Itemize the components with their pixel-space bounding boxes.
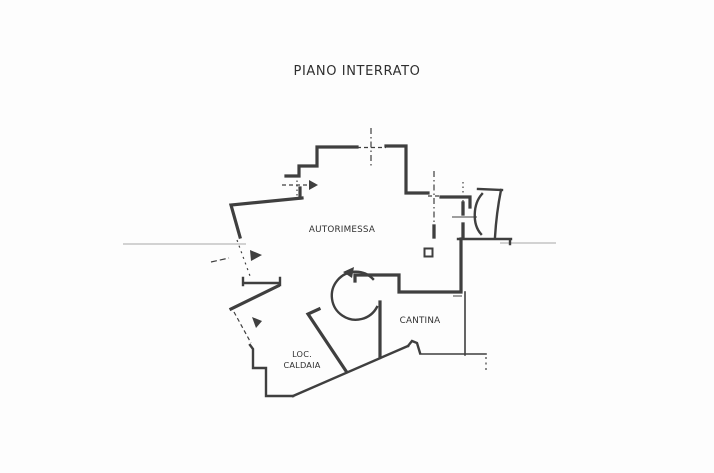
wall-bottom-bump <box>408 341 420 353</box>
left-horizontal-dash <box>211 258 229 262</box>
boiler-room-walls <box>231 278 420 396</box>
wall-top-right-block <box>386 146 428 193</box>
room-label-cellar: CANTINA <box>400 316 441 326</box>
garage-walls <box>231 146 511 356</box>
boiler-opening-dash <box>234 312 251 343</box>
reference-hairlines <box>123 243 556 244</box>
boiler-arrow-icon <box>252 317 262 328</box>
basement-floorplan-drawing: AUTORIMESSA CANTINA LOC. CALDAIA <box>0 0 714 473</box>
wall-niche-top <box>243 278 280 285</box>
wall-boiler-left-steps <box>250 345 293 396</box>
curve-inner-edge <box>475 194 482 234</box>
wall-top-left-steps <box>286 147 357 176</box>
curve-cap <box>478 189 502 190</box>
ramp-direction-arrow-icon <box>343 267 354 278</box>
right-gate-symbol <box>434 182 477 237</box>
left-ramp-dash <box>237 240 250 276</box>
room-label-boiler-line2: CALDAIA <box>283 360 320 370</box>
wall-boiler-upper-slant <box>231 286 278 309</box>
room-label-garage: AUTORIMESSA <box>309 225 375 235</box>
room-labels: AUTORIMESSA CANTINA LOC. CALDAIA <box>283 225 440 370</box>
opening-dashed-lines <box>211 128 486 373</box>
curved-ramp-wall <box>475 189 502 237</box>
column-marker <box>425 249 433 257</box>
curve-outer-edge <box>495 190 501 237</box>
wall-left-long <box>231 198 302 237</box>
cellar-hatch-marks <box>452 293 462 296</box>
scanned-floorplan-page: PIANO INTERRATO <box>0 0 714 473</box>
room-label-boiler-line1: LOC. <box>292 349 312 359</box>
left-ramp-arrow-icon <box>250 250 262 261</box>
wall-upper-right-segment <box>441 197 470 207</box>
entrance-arrow-icon <box>309 180 318 190</box>
